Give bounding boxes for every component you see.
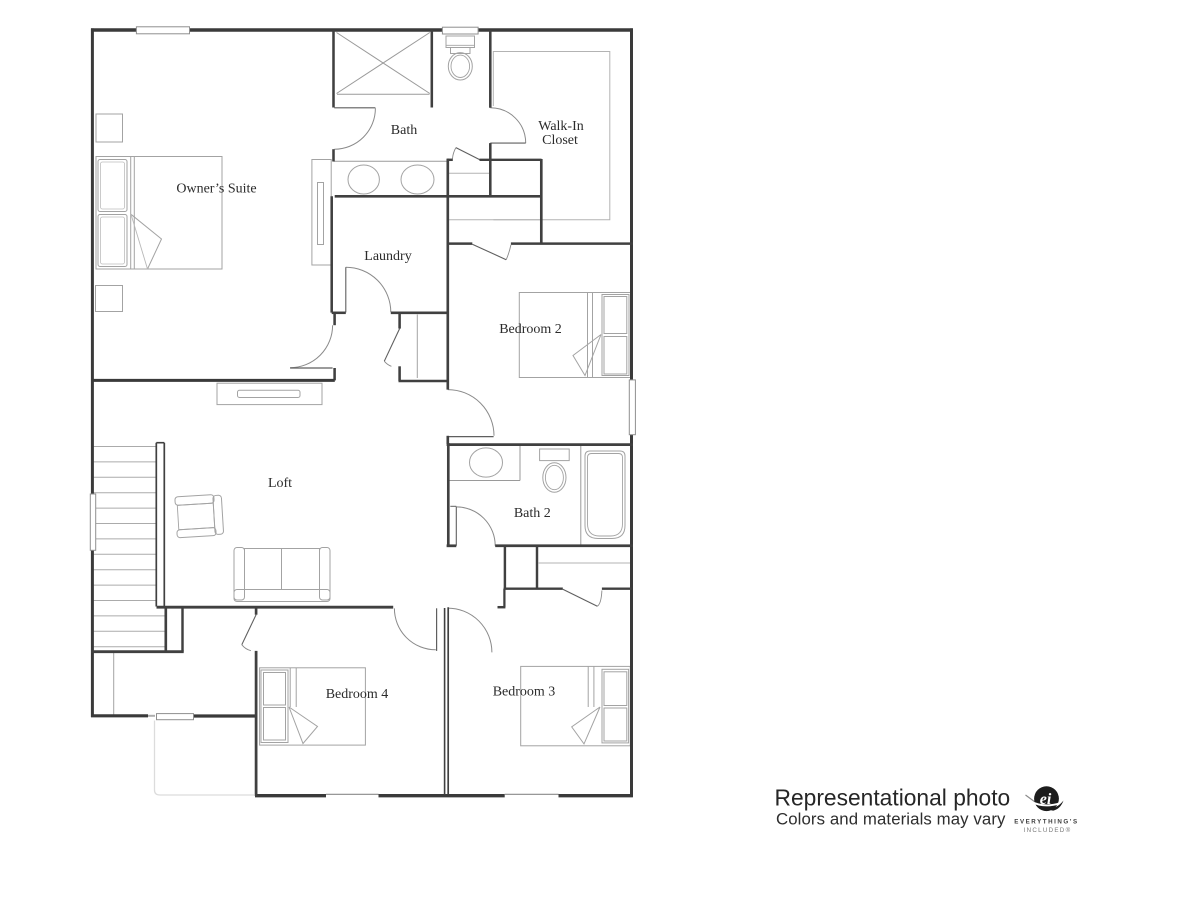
svg-text:Bedroom 3: Bedroom 3 bbox=[493, 685, 556, 700]
svg-text:Bath 2: Bath 2 bbox=[514, 506, 551, 521]
svg-text:EVERYTHING’S: EVERYTHING’S bbox=[1014, 818, 1078, 825]
svg-text:Loft: Loft bbox=[268, 476, 292, 491]
svg-text:Bedroom 2: Bedroom 2 bbox=[499, 322, 562, 337]
svg-text:Bath: Bath bbox=[391, 123, 417, 138]
svg-text:Representational photo: Representational photo bbox=[775, 785, 1011, 811]
svg-text:Colors and materials may vary: Colors and materials may vary bbox=[776, 810, 1006, 829]
svg-text:Owner’s Suite: Owner’s Suite bbox=[176, 182, 256, 197]
svg-text:INCLUDED®: INCLUDED® bbox=[1024, 827, 1072, 834]
svg-text:Bedroom 4: Bedroom 4 bbox=[326, 687, 389, 702]
svg-text:Closet: Closet bbox=[542, 133, 578, 148]
svg-text:Walk-In: Walk-In bbox=[538, 119, 584, 134]
svg-text:Laundry: Laundry bbox=[364, 249, 411, 264]
